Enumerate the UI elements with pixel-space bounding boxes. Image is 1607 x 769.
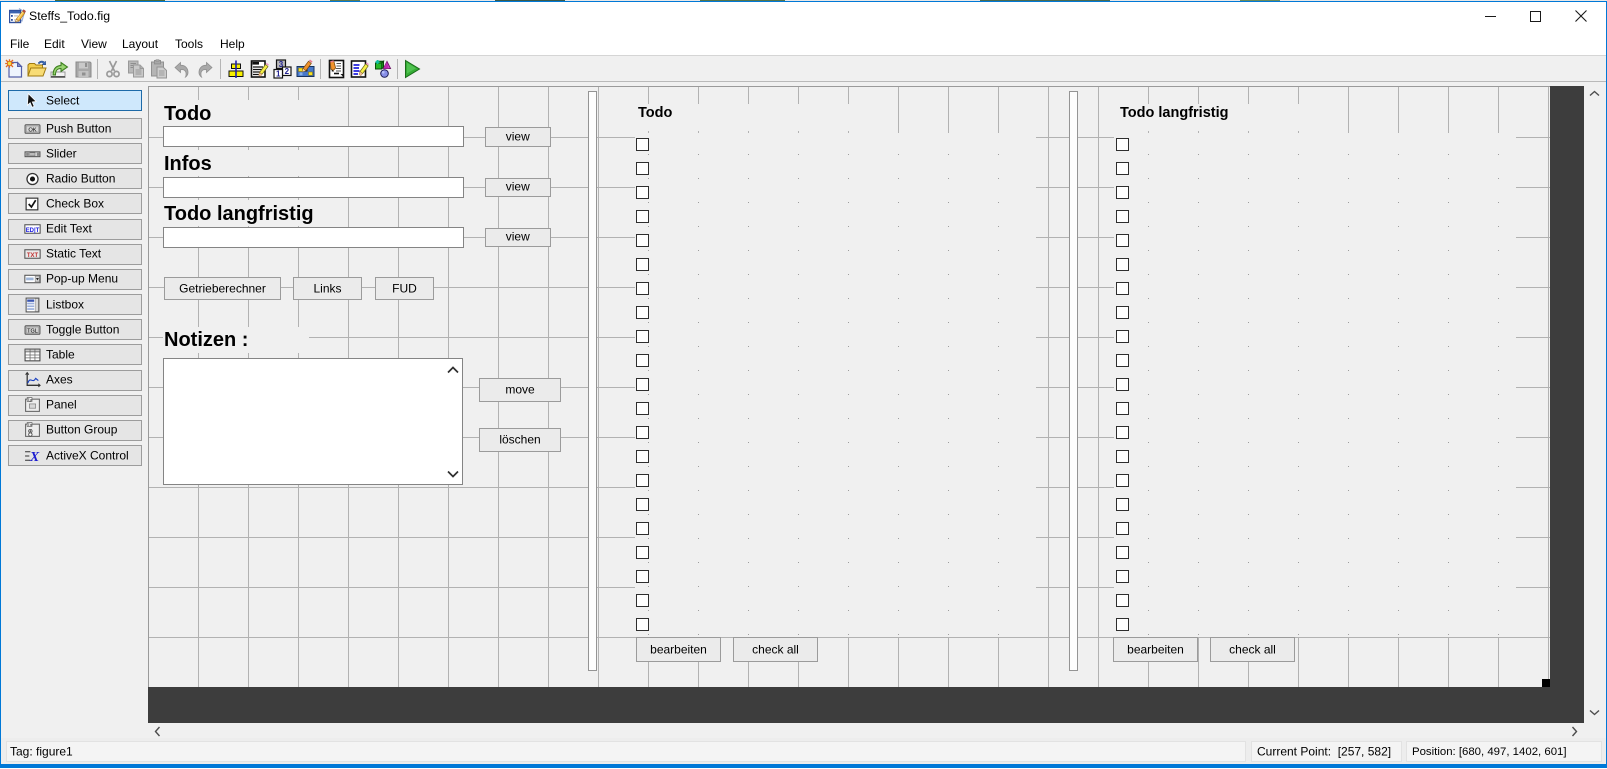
- svg-text:TGL: TGL: [27, 328, 38, 334]
- svg-text:1: 1: [276, 70, 281, 79]
- svg-text:Tb: Tb: [27, 423, 31, 427]
- svg-text:ED|T: ED|T: [26, 228, 40, 234]
- svg-text:TXT: TXT: [27, 253, 39, 259]
- svg-text:Tp: Tp: [27, 398, 31, 402]
- svg-text:X: X: [29, 448, 40, 463]
- svg-text:2: 2: [285, 67, 290, 76]
- svg-text:OK: OK: [28, 127, 36, 133]
